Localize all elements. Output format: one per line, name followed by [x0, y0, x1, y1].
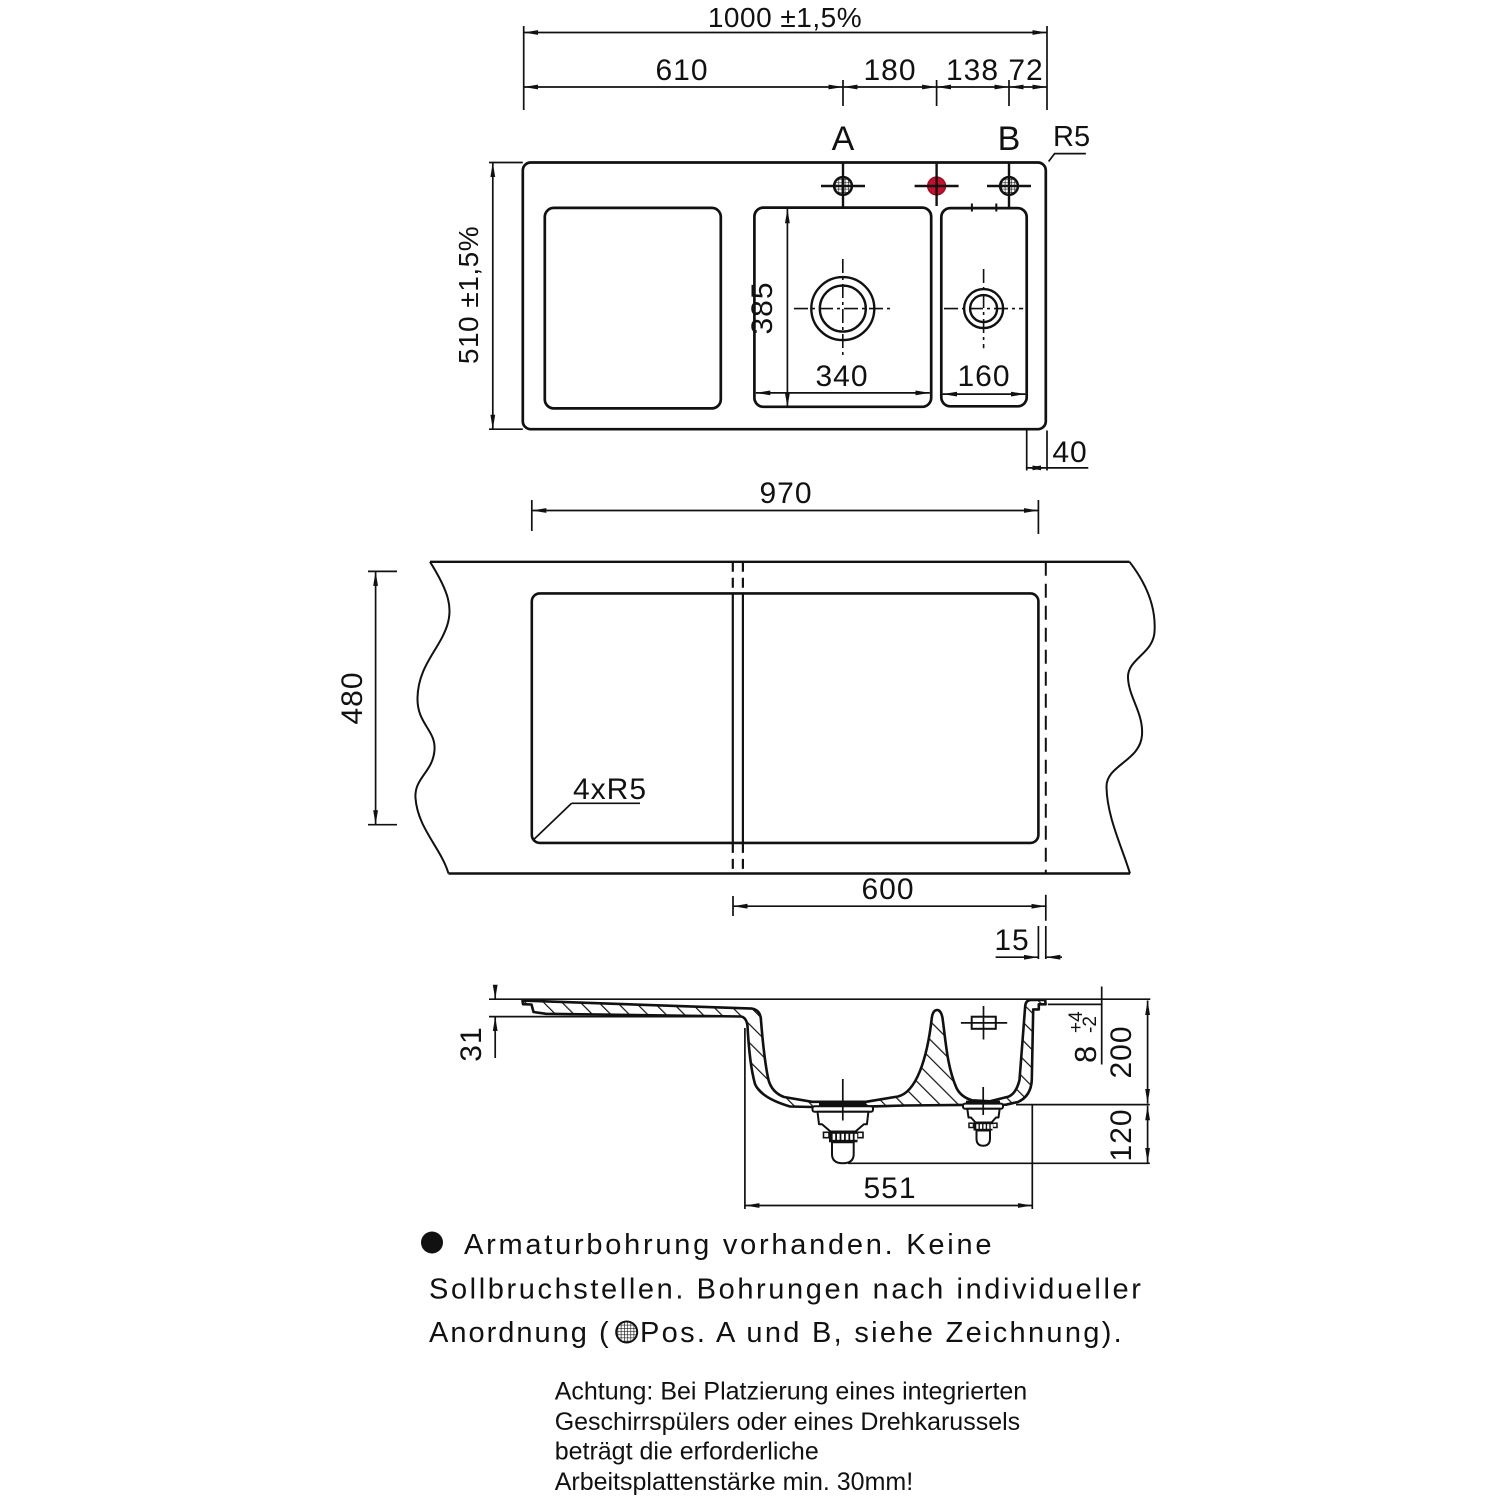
- svg-text:180: 180: [863, 54, 916, 87]
- svg-text:970: 970: [759, 477, 812, 510]
- svg-text:Arbeitsplattenstärke min. 30mm: Arbeitsplattenstärke min. 30mm!: [555, 1468, 913, 1496]
- svg-text:40: 40: [1052, 436, 1087, 469]
- svg-text:340: 340: [815, 360, 868, 393]
- svg-text:138: 138: [946, 54, 999, 87]
- svg-text:551: 551: [863, 1172, 916, 1205]
- svg-text:beträgt die erforderliche: beträgt die erforderliche: [555, 1438, 819, 1466]
- svg-text:385: 385: [746, 281, 779, 334]
- svg-text:Geschirrspülers oder eines Dre: Geschirrspülers oder eines Drehkarussels: [555, 1408, 1020, 1436]
- svg-text:600: 600: [861, 873, 914, 906]
- svg-text:-2: -2: [1080, 1016, 1101, 1033]
- svg-text:15: 15: [994, 924, 1029, 957]
- svg-text:72: 72: [1008, 54, 1043, 87]
- svg-text:1000 ±1,5%: 1000 ±1,5%: [708, 2, 862, 33]
- svg-text:Pos. A und B, siehe Zeichnung): Pos. A und B, siehe Zeichnung).: [640, 1317, 1124, 1349]
- svg-text:Achtung: Bei Platzierung eines: Achtung: Bei Platzierung eines integrier…: [555, 1378, 1028, 1406]
- svg-text:510 ±1,5%: 510 ±1,5%: [453, 226, 484, 364]
- svg-text:4xR5: 4xR5: [573, 773, 647, 806]
- svg-text:480: 480: [336, 671, 369, 724]
- svg-text:Armaturbohrung vorhanden. Kein: Armaturbohrung vorhanden. Keine: [464, 1229, 994, 1261]
- svg-text:120: 120: [1105, 1108, 1138, 1161]
- svg-text:Anordnung (: Anordnung (: [429, 1317, 611, 1349]
- svg-text:8: 8: [1068, 1046, 1103, 1063]
- svg-text:160: 160: [957, 360, 1010, 393]
- svg-text:A: A: [832, 120, 855, 158]
- svg-text:200: 200: [1105, 1025, 1138, 1078]
- svg-text:R5: R5: [1053, 121, 1090, 153]
- svg-text:610: 610: [655, 54, 708, 87]
- svg-text:B: B: [998, 120, 1021, 158]
- svg-text:31: 31: [455, 1026, 488, 1061]
- svg-text:Sollbruchstellen. Bohrungen na: Sollbruchstellen. Bohrungen nach individ…: [429, 1274, 1143, 1306]
